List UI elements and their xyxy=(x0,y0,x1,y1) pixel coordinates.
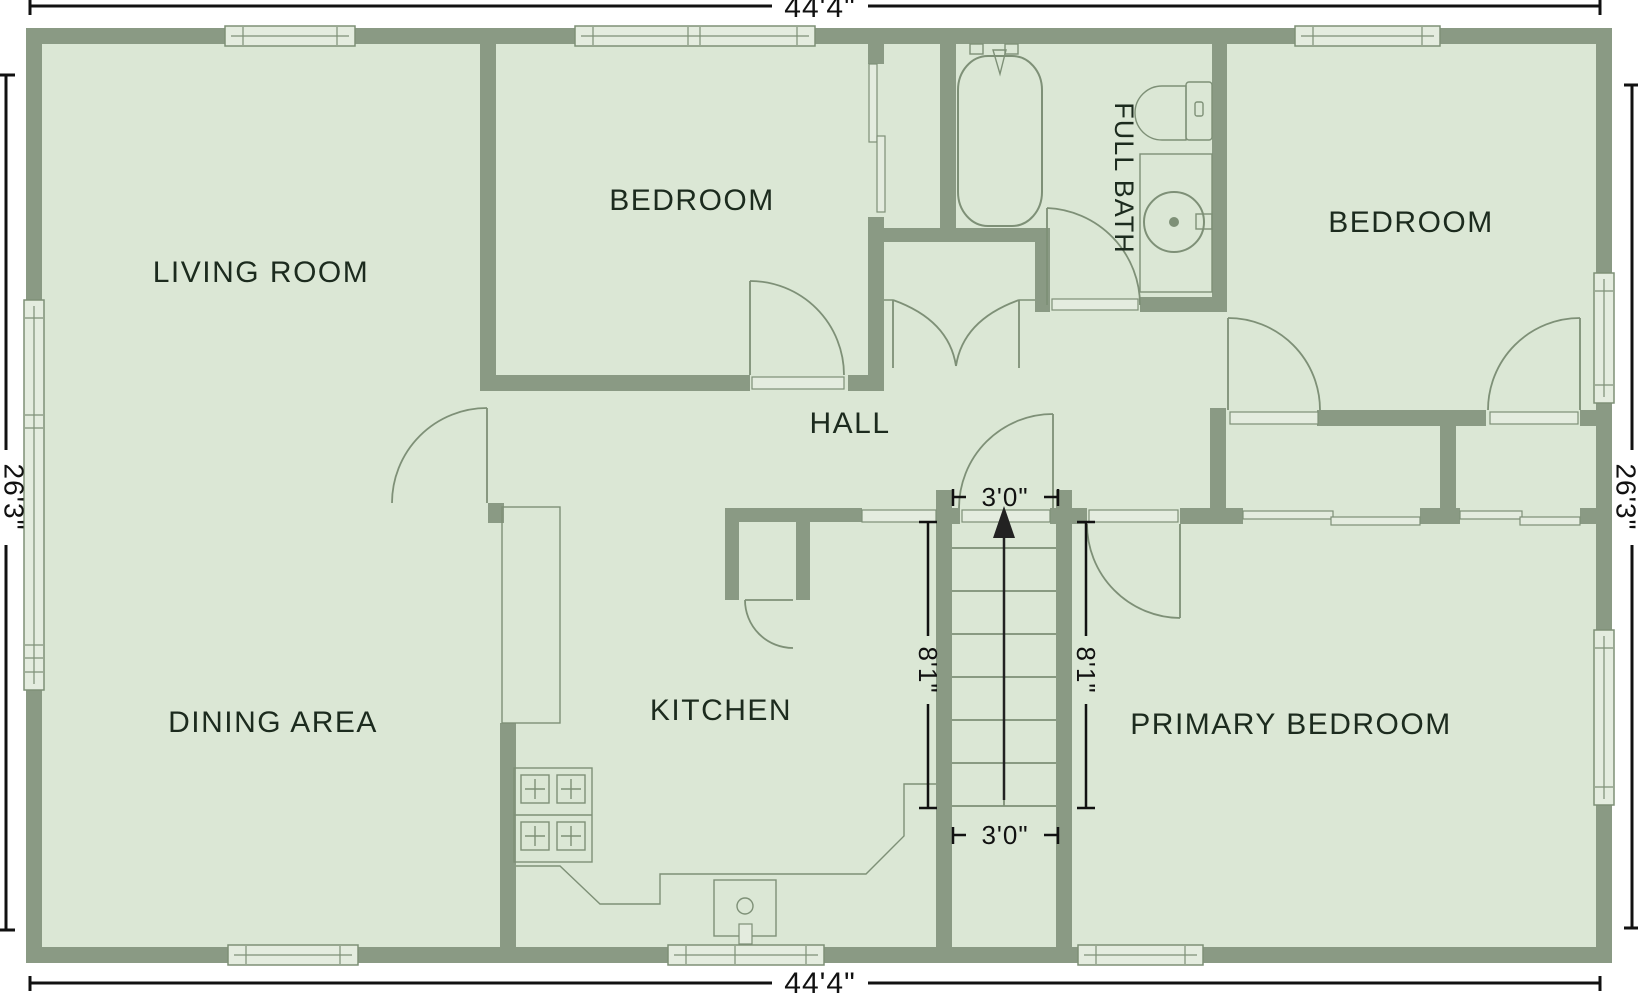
label-bedroom-right: BEDROOM xyxy=(1328,206,1494,239)
window-living-top xyxy=(225,26,355,46)
cased-opening-kitchen xyxy=(862,510,936,522)
label-kitchen: KITCHEN xyxy=(650,694,792,727)
floor xyxy=(42,44,1596,947)
window-kitchen-bottom xyxy=(668,945,824,965)
window-primary-right-side xyxy=(1594,630,1614,805)
sliding-door-closet-right xyxy=(1460,511,1522,519)
building-shell xyxy=(26,28,1612,963)
window-dining-bottom xyxy=(228,945,358,965)
sliding-door-bedroom-closet xyxy=(869,64,877,142)
floor-plan: 44'4" 44'4" 26'3" 26'3" 3'0" 3'0" 8'1" 8… xyxy=(0,0,1638,993)
sliding-door-primary-closet xyxy=(1243,511,1333,519)
dim-stair-run-left: 8'1" xyxy=(913,646,943,693)
dim-stair-width-top: 3'0" xyxy=(981,482,1028,512)
sliding-door-bedroom-closet xyxy=(877,136,885,212)
dim-width-top: 44'4" xyxy=(784,0,855,24)
window-bedroom-top xyxy=(575,26,815,46)
sliding-door-primary-closet xyxy=(1331,517,1420,525)
dim-width-bottom: 44'4" xyxy=(784,967,855,993)
dim-depth-right: 26'3" xyxy=(1611,463,1638,530)
window-bedroom-right-top xyxy=(1295,26,1440,46)
window-primary-bottom xyxy=(1078,945,1203,965)
label-bedroom-top: BEDROOM xyxy=(609,184,775,217)
label-dining-area: DINING AREA xyxy=(168,706,378,739)
dim-stair-run-right: 8'1" xyxy=(1071,646,1101,693)
label-full-bath: FULL BATH xyxy=(1109,102,1139,254)
label-hall: HALL xyxy=(809,407,890,440)
dim-depth-left: 26'3" xyxy=(0,463,30,530)
dim-stair-width-bottom: 3'0" xyxy=(981,820,1028,850)
sliding-door-closet-right xyxy=(1520,517,1580,525)
label-primary-bedroom: PRIMARY BEDROOM xyxy=(1130,708,1451,741)
label-living-room: LIVING ROOM xyxy=(153,256,370,289)
window-bedroom-right-side xyxy=(1594,273,1614,403)
